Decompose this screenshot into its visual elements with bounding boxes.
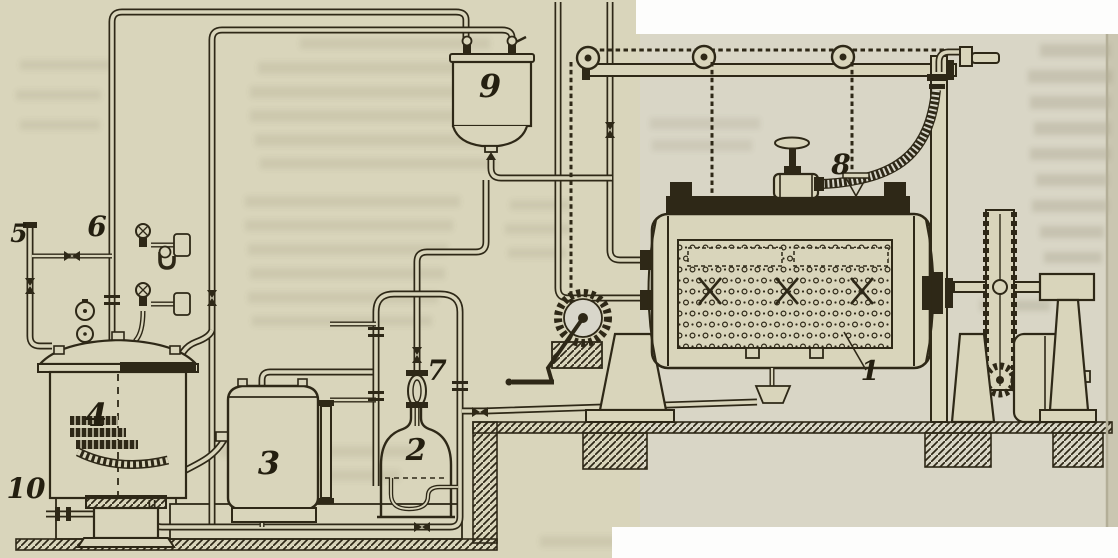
sight-tube-7 [406,370,428,408]
overhead-beam [584,64,956,76]
nozzle-stub [972,53,999,63]
part-label-1: 1 [861,356,880,387]
part-label-9: 9 [479,67,501,105]
foundation-block [925,433,991,467]
part-label-4: 4 [85,396,107,434]
scanned-page: 1 2 3 4 5 6 7 8 9 10 [0,0,1118,558]
foundation-block [1053,433,1103,467]
right-ground-line [473,422,1112,433]
part-label-8: 8 [830,148,850,181]
sight-glass [318,400,334,504]
tank-vessel-3 [228,379,334,522]
part-label-2: 2 [405,433,427,468]
part-label-6: 6 [87,210,106,243]
part-label-3: 3 [258,444,280,482]
part-label-7: 7 [427,354,447,387]
part-label-5: 5 [10,219,27,248]
pump-body [94,508,158,538]
foundation-block [583,433,647,469]
large-gear [986,210,1014,394]
kettle-vessel-4 [38,332,198,498]
engraving-canvas: 1 2 3 4 5 6 7 8 9 10 [0,0,1118,558]
part-label-10: 10 [7,472,46,505]
platform-step-wall [473,422,497,543]
